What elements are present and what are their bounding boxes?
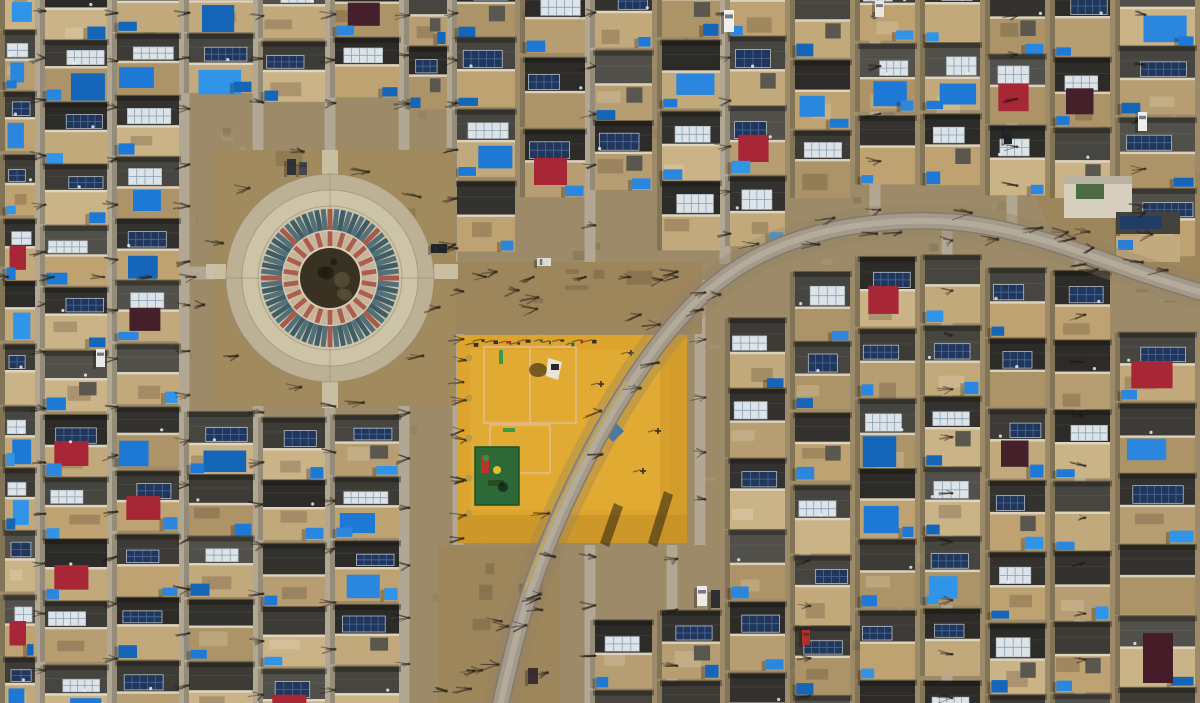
house-block bbox=[725, 458, 787, 529]
house-block bbox=[184, 33, 255, 95]
house-block bbox=[0, 530, 37, 592]
house-block bbox=[0, 154, 37, 216]
house-block bbox=[520, 129, 587, 198]
house-block bbox=[855, 328, 917, 399]
house-block bbox=[184, 474, 255, 538]
house-block bbox=[790, 484, 852, 553]
circular-plaza bbox=[194, 148, 458, 408]
house-block bbox=[1050, 57, 1112, 127]
house-block bbox=[112, 0, 181, 32]
house-block bbox=[112, 597, 181, 660]
house-block bbox=[1050, 409, 1112, 479]
house-block bbox=[1050, 0, 1112, 57]
house-block bbox=[790, 412, 852, 481]
house-block bbox=[40, 476, 109, 540]
house-block bbox=[1115, 45, 1197, 115]
house-block bbox=[40, 163, 109, 225]
house-block bbox=[330, 666, 401, 703]
house-block bbox=[112, 156, 181, 218]
aerial-photo-svg bbox=[0, 0, 1200, 703]
house-block bbox=[404, 0, 449, 46]
house-block bbox=[920, 466, 982, 536]
house-block bbox=[790, 341, 852, 410]
house-block bbox=[657, 180, 722, 250]
house-block bbox=[855, 43, 917, 112]
house-block bbox=[855, 115, 917, 185]
house-block bbox=[0, 406, 37, 468]
house-block bbox=[258, 417, 327, 481]
house-block bbox=[0, 0, 37, 29]
house-block bbox=[112, 280, 181, 342]
house-block bbox=[855, 468, 917, 539]
house-block bbox=[725, 0, 787, 37]
house-block bbox=[657, 0, 722, 37]
house-block bbox=[1050, 270, 1112, 341]
house-block bbox=[520, 0, 587, 53]
house-block bbox=[725, 601, 787, 671]
house-block bbox=[985, 694, 1047, 703]
house-block bbox=[184, 661, 255, 703]
house-block bbox=[920, 0, 982, 43]
house-block bbox=[258, 41, 327, 103]
house-block bbox=[0, 91, 37, 151]
house-block bbox=[330, 414, 401, 476]
house-block bbox=[920, 113, 982, 185]
house-block bbox=[1115, 332, 1197, 401]
house-block bbox=[112, 33, 181, 96]
house-block bbox=[920, 42, 982, 113]
house-block bbox=[1050, 339, 1112, 409]
house-block bbox=[790, 0, 852, 58]
house-block bbox=[452, 0, 517, 39]
house-block bbox=[258, 606, 327, 667]
house-block bbox=[112, 95, 181, 156]
house-block bbox=[725, 105, 787, 175]
house-block bbox=[985, 623, 1047, 695]
house-block bbox=[920, 680, 982, 703]
house-block bbox=[657, 111, 722, 182]
house-block bbox=[0, 29, 37, 90]
house-block bbox=[330, 604, 401, 665]
house-block bbox=[0, 467, 37, 531]
house-block bbox=[0, 218, 37, 281]
house-block bbox=[40, 287, 109, 349]
house-block bbox=[452, 109, 517, 178]
house-block bbox=[1115, 473, 1197, 544]
house-block bbox=[1115, 0, 1197, 47]
house-block bbox=[985, 338, 1047, 407]
house-block bbox=[855, 398, 917, 469]
house-block bbox=[657, 610, 722, 680]
house-block bbox=[112, 660, 181, 703]
house-block bbox=[985, 480, 1047, 551]
house-block bbox=[112, 218, 181, 281]
house-block bbox=[40, 39, 109, 102]
house-block bbox=[1115, 687, 1197, 703]
house-block bbox=[985, 0, 1047, 56]
house-block bbox=[0, 594, 37, 657]
house-block bbox=[40, 664, 109, 703]
house-block bbox=[404, 46, 449, 110]
house-block bbox=[184, 599, 255, 660]
house-block bbox=[920, 536, 982, 606]
house-block bbox=[985, 54, 1047, 124]
house-block bbox=[657, 39, 722, 109]
house-block bbox=[725, 388, 787, 458]
house-block bbox=[855, 680, 917, 703]
house-block bbox=[1050, 481, 1112, 552]
house-block bbox=[920, 396, 982, 467]
house-block bbox=[725, 317, 787, 389]
house-block bbox=[330, 37, 401, 98]
house-block bbox=[40, 414, 109, 478]
house-block bbox=[920, 254, 982, 323]
house-block bbox=[985, 552, 1047, 621]
house-block bbox=[184, 411, 255, 475]
house-block bbox=[112, 406, 181, 467]
house-block bbox=[920, 608, 982, 676]
house-block bbox=[790, 130, 852, 198]
house-block bbox=[40, 538, 109, 601]
house-block bbox=[258, 668, 327, 703]
house-block bbox=[1050, 550, 1112, 620]
house-block bbox=[985, 267, 1047, 337]
house-block bbox=[0, 344, 37, 405]
aerial-photo bbox=[0, 0, 1200, 703]
house-block bbox=[1050, 693, 1112, 703]
house-block bbox=[0, 657, 37, 703]
house-block bbox=[258, 543, 327, 607]
house-block bbox=[725, 36, 787, 107]
house-block bbox=[330, 540, 401, 601]
house-block bbox=[855, 0, 917, 41]
house-block bbox=[40, 600, 109, 661]
house-block bbox=[330, 476, 401, 538]
house-block bbox=[790, 59, 852, 129]
house-block bbox=[40, 0, 109, 41]
house-block bbox=[590, 50, 654, 122]
house-block bbox=[452, 37, 517, 108]
house-block bbox=[452, 181, 517, 253]
house-block bbox=[855, 256, 917, 327]
house-block bbox=[1050, 621, 1112, 693]
house-block bbox=[112, 534, 181, 598]
house-block bbox=[790, 271, 852, 342]
house-block bbox=[0, 280, 37, 340]
house-block bbox=[184, 0, 255, 32]
house-block bbox=[1115, 544, 1197, 615]
house-block bbox=[855, 539, 917, 608]
house-block bbox=[112, 470, 181, 531]
house-block bbox=[184, 535, 255, 597]
house-block bbox=[258, 0, 327, 38]
house-block bbox=[112, 343, 181, 404]
house-block bbox=[258, 479, 327, 540]
house-block bbox=[855, 610, 917, 680]
house-block bbox=[590, 0, 654, 48]
house-block bbox=[590, 619, 654, 689]
house-block bbox=[725, 672, 787, 703]
house-block bbox=[40, 101, 109, 165]
house-block bbox=[657, 680, 722, 703]
house-block bbox=[590, 120, 654, 191]
house-block bbox=[590, 690, 654, 703]
house-block bbox=[985, 408, 1047, 479]
house-block bbox=[1115, 403, 1197, 473]
house-block bbox=[330, 0, 401, 37]
house-block bbox=[725, 529, 787, 600]
house-block bbox=[520, 57, 587, 127]
